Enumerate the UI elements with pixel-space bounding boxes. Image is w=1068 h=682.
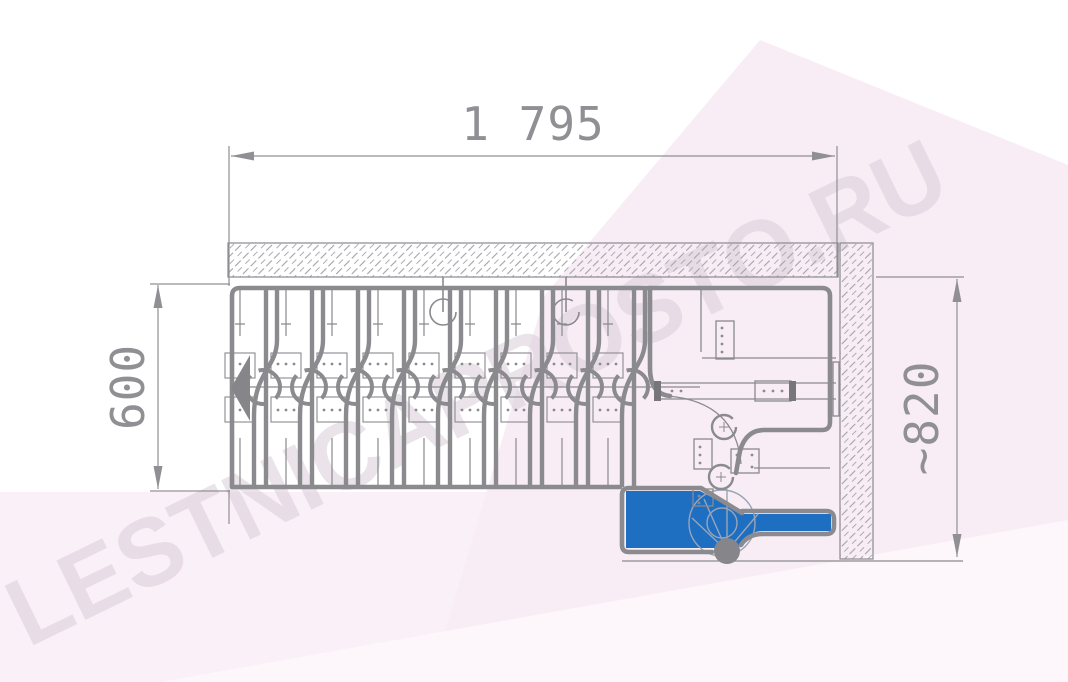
screw-dot (515, 363, 518, 366)
screw-dot (607, 409, 610, 412)
screw-dot (469, 409, 472, 412)
stair-plan-screenshot: LESTNICAPROSTO.RU (0, 0, 1068, 682)
screw-dot (385, 363, 388, 366)
dimension-label-top: 1 795 (461, 97, 604, 151)
screw-dot (469, 363, 472, 366)
screw-dot (515, 409, 518, 412)
screw-dot (369, 363, 372, 366)
screw-dot (569, 409, 572, 412)
screw-dot (553, 363, 556, 366)
newel-post (714, 538, 740, 564)
dimension-label-left: 600 (101, 344, 155, 430)
right-wall (840, 243, 873, 559)
screw-dot (431, 363, 434, 366)
screw-dot (231, 409, 234, 412)
screw-dot (561, 363, 564, 366)
screw-dot (377, 409, 380, 412)
screw-dot (615, 363, 618, 366)
top-wall (228, 243, 838, 277)
screw-dot (339, 409, 342, 412)
screw-dot (331, 363, 334, 366)
screw-dot (507, 409, 510, 412)
screw-dot (477, 363, 480, 366)
beam-end-cap (654, 381, 661, 401)
screw-dot (507, 363, 510, 366)
screw-dot (569, 363, 572, 366)
screw-dot (615, 409, 618, 412)
screw-dot (423, 363, 426, 366)
screw-dot (239, 409, 242, 412)
screw-dot (599, 409, 602, 412)
screw-dot (293, 409, 296, 412)
screw-dot (323, 363, 326, 366)
screw-dot (285, 363, 288, 366)
arrowhead-left (231, 152, 254, 161)
screw-dot (293, 363, 296, 366)
screw-dot (331, 409, 334, 412)
screw-dot (231, 363, 234, 366)
screw-dot (415, 409, 418, 412)
screw-dot (561, 409, 564, 412)
screw-dot (477, 409, 480, 412)
screw-dot (599, 363, 602, 366)
screw-dot (369, 409, 372, 412)
arrowhead-up (154, 285, 163, 308)
screw-dot (277, 363, 280, 366)
screw-dot (431, 409, 434, 412)
screw-dot (553, 409, 556, 412)
screw-dot (239, 363, 242, 366)
screw-dot (607, 363, 610, 366)
screw-dot (461, 363, 464, 366)
screw-dot (423, 409, 426, 412)
beam-end-cap (789, 381, 796, 401)
screw-dot (377, 363, 380, 366)
screw-dot (323, 409, 326, 412)
screw-dot (415, 363, 418, 366)
screw-dot (523, 409, 526, 412)
screw-dot (339, 363, 342, 366)
arrowhead-down (154, 466, 163, 489)
screw-dot (523, 363, 526, 366)
screw-dot (285, 409, 288, 412)
dimension-label-right: ~820 (895, 361, 949, 476)
screw-dot (385, 409, 388, 412)
stair-plan-drawing: LESTNICAPROSTO.RU (0, 0, 1068, 682)
screw-dot (277, 409, 280, 412)
screw-dot (461, 409, 464, 412)
